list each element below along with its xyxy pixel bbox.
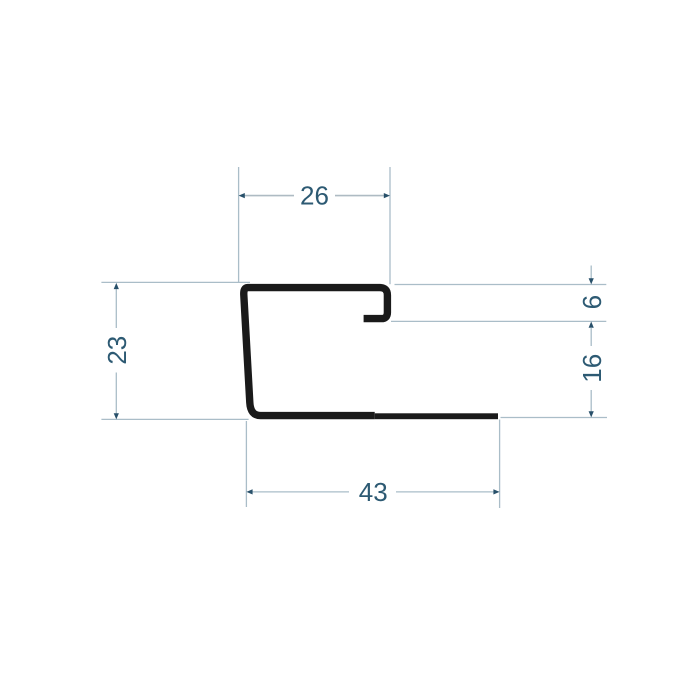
svg-text:43: 43 (359, 477, 388, 507)
svg-text:16: 16 (577, 354, 607, 383)
svg-text:23: 23 (102, 336, 132, 365)
svg-text:6: 6 (577, 295, 607, 309)
svg-text:26: 26 (300, 181, 329, 211)
